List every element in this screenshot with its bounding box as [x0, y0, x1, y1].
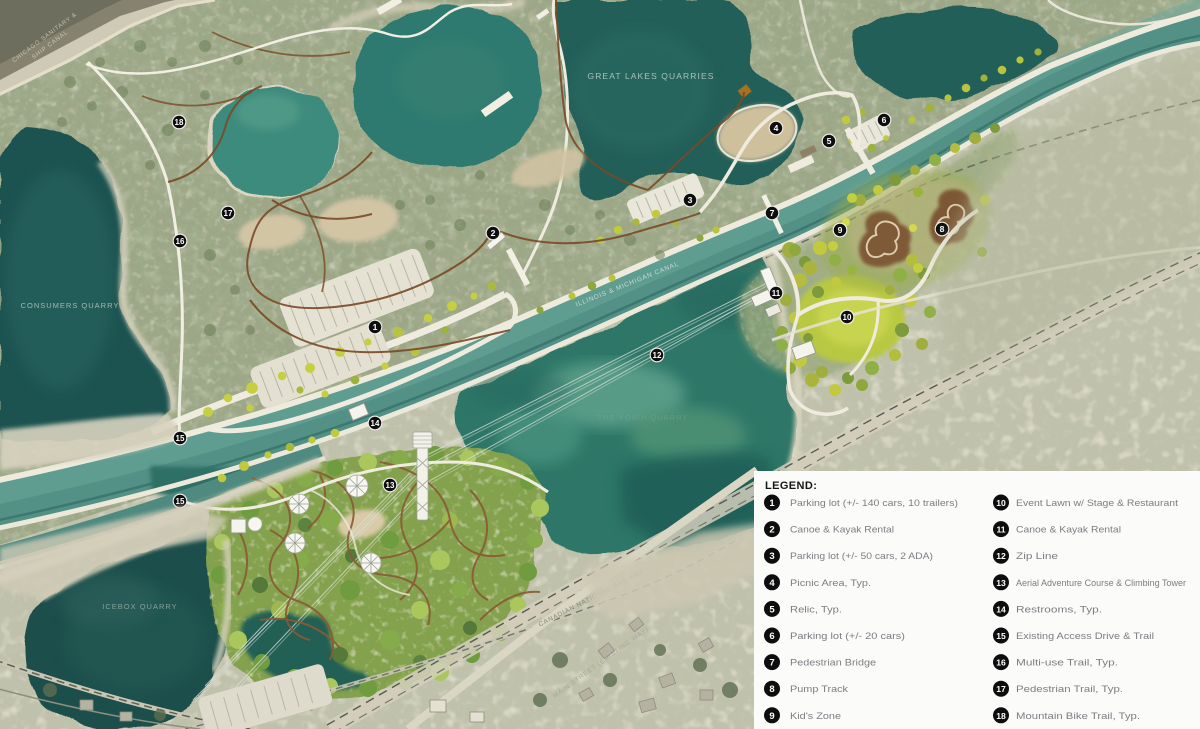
svg-text:12: 12 [996, 551, 1006, 561]
svg-text:4: 4 [774, 123, 779, 133]
svg-text:Canoe & Kayak Rental: Canoe & Kayak Rental [790, 525, 894, 535]
svg-text:Canoe & Kayak Rental: Canoe & Kayak Rental [1016, 525, 1121, 535]
svg-text:10: 10 [996, 498, 1006, 508]
svg-text:16: 16 [996, 658, 1006, 668]
svg-text:Aerial Adventure Course & Clim: Aerial Adventure Course & Climbing Tower [1016, 578, 1186, 588]
svg-text:3: 3 [769, 551, 774, 562]
svg-text:Event Lawn w/ Stage & Restaura: Event Lawn w/ Stage & Restaurant [1016, 498, 1178, 508]
svg-text:8: 8 [769, 684, 774, 695]
svg-text:13: 13 [386, 481, 395, 490]
svg-text:15: 15 [996, 631, 1006, 641]
svg-text:4: 4 [769, 578, 775, 589]
svg-text:Existing Access Drive & Trail: Existing Access Drive & Trail [1016, 631, 1154, 641]
svg-text:Relic, Typ.: Relic, Typ. [790, 604, 842, 614]
svg-text:14: 14 [996, 604, 1006, 614]
svg-text:5: 5 [827, 136, 832, 146]
svg-text:Parking lot (+/- 140 cars, 10: Parking lot (+/- 140 cars, 10 trailers) [790, 498, 958, 508]
svg-text:2: 2 [491, 228, 496, 238]
svg-text:9: 9 [769, 711, 774, 722]
svg-text:Zip Line: Zip Line [1016, 551, 1058, 561]
svg-text:16: 16 [176, 237, 185, 246]
svg-text:10: 10 [843, 313, 852, 322]
svg-text:17: 17 [224, 209, 233, 218]
svg-text:ICEBOX QUARRY: ICEBOX QUARRY [102, 602, 177, 611]
svg-text:Pedestrian Bridge: Pedestrian Bridge [790, 658, 876, 668]
svg-text:8: 8 [940, 224, 945, 234]
svg-text:Mountain Bike Trail, Typ.: Mountain Bike Trail, Typ. [1016, 711, 1140, 721]
svg-text:11: 11 [996, 525, 1005, 535]
svg-text:2: 2 [769, 525, 774, 536]
svg-text:18: 18 [996, 711, 1006, 721]
svg-text:CONSUMERS QUARRY: CONSUMERS QUARRY [21, 301, 120, 310]
svg-text:7: 7 [769, 658, 774, 669]
svg-text:Parking lot (+/- 50 cars, 2 AD: Parking lot (+/- 50 cars, 2 ADA) [790, 551, 933, 561]
svg-text:1: 1 [769, 498, 775, 509]
svg-text:THE YONDI QUARRY: THE YONDI QUARRY [598, 413, 689, 422]
svg-text:Parking lot (+/- 20 cars): Parking lot (+/- 20 cars) [790, 631, 905, 641]
svg-text:GREAT LAKES QUARRIES: GREAT LAKES QUARRIES [587, 71, 714, 81]
svg-text:11: 11 [772, 289, 781, 298]
svg-text:9: 9 [838, 225, 843, 235]
svg-text:15: 15 [176, 497, 185, 506]
svg-text:Kid's Zone: Kid's Zone [790, 711, 841, 721]
svg-text:13: 13 [996, 578, 1006, 588]
svg-text:15: 15 [176, 434, 185, 443]
svg-text:5: 5 [769, 604, 775, 615]
svg-text:6: 6 [769, 631, 774, 642]
svg-text:Multi-use Trail, Typ.: Multi-use Trail, Typ. [1016, 658, 1118, 668]
svg-text:3: 3 [688, 195, 693, 205]
svg-text:17: 17 [996, 684, 1006, 694]
svg-text:Pump Track: Pump Track [790, 684, 848, 694]
svg-text:12: 12 [653, 351, 662, 360]
svg-text:6: 6 [882, 115, 887, 125]
svg-text:1: 1 [373, 322, 378, 332]
svg-text:LEGEND:: LEGEND: [765, 480, 817, 492]
svg-text:14: 14 [371, 419, 380, 428]
svg-text:7: 7 [770, 208, 775, 218]
svg-text:Picnic Area, Typ.: Picnic Area, Typ. [790, 578, 871, 588]
svg-text:Pedestrian Trail, Typ.: Pedestrian Trail, Typ. [1016, 684, 1123, 694]
svg-text:Restrooms, Typ.: Restrooms, Typ. [1016, 604, 1102, 614]
svg-text:18: 18 [175, 118, 184, 127]
